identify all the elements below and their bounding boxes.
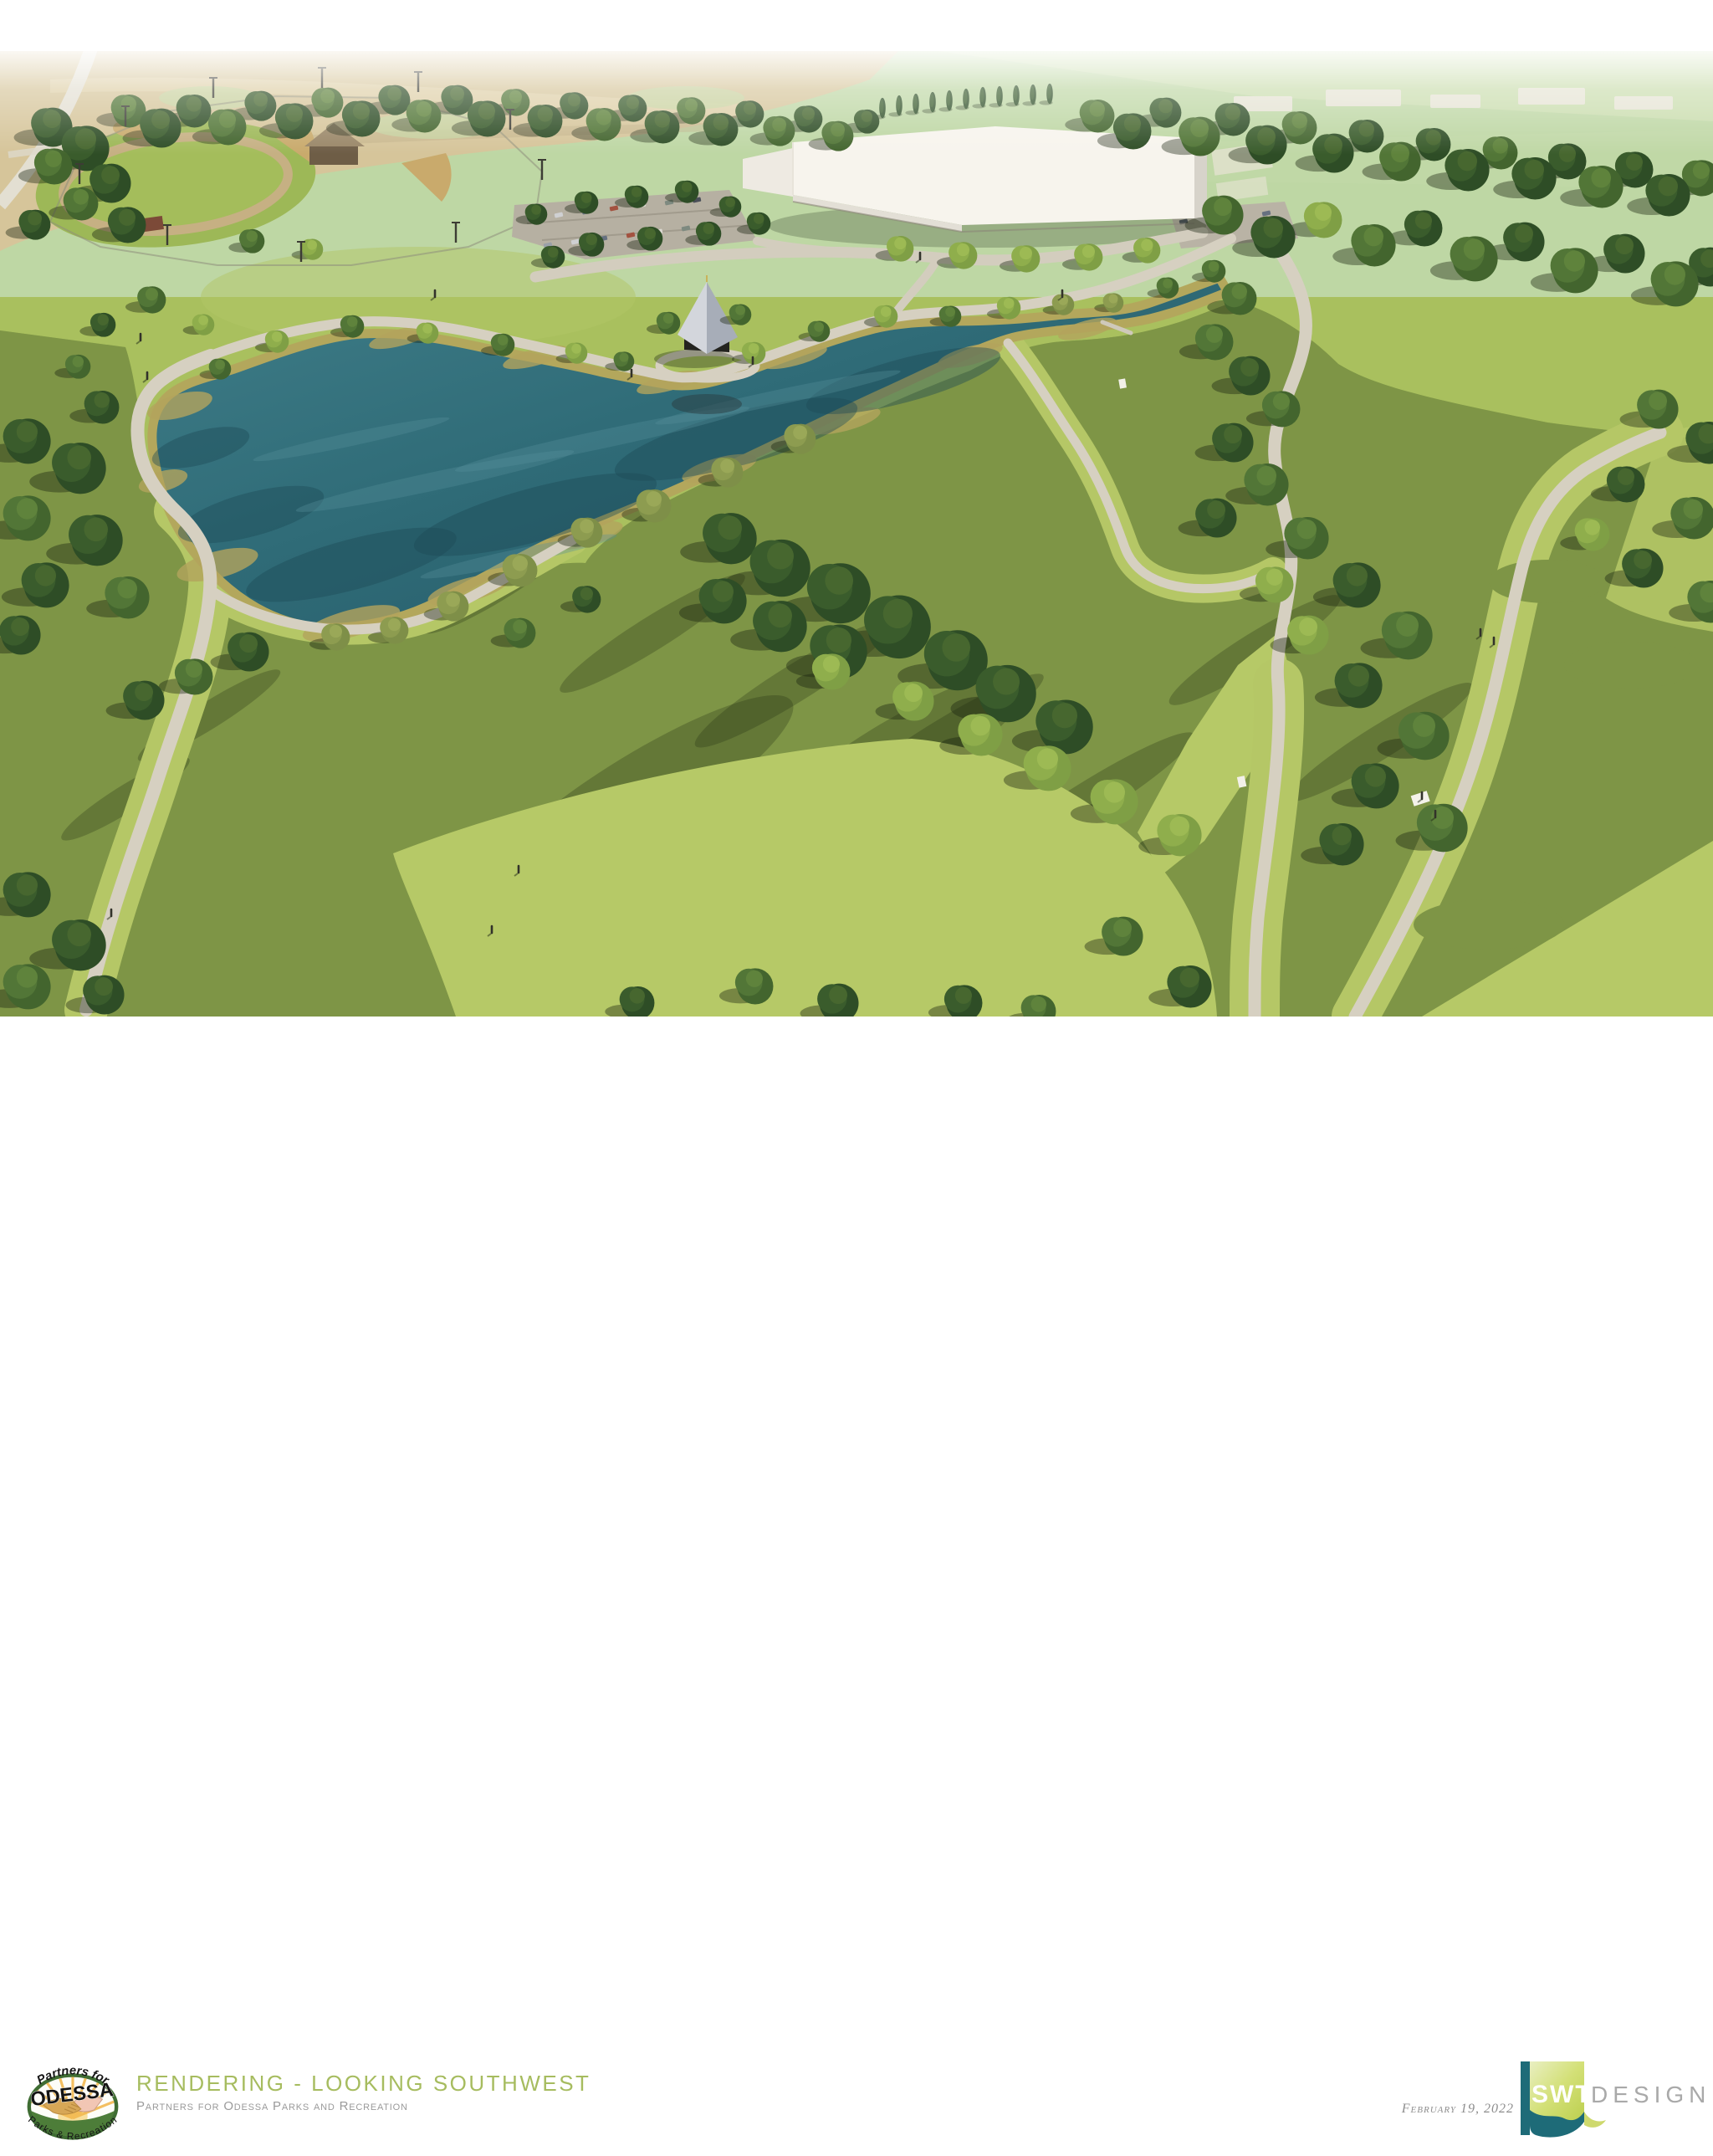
horizon-haze [0,46,1713,155]
chapel-reflection [672,394,742,414]
odessa-parks-logo: ODESSA Partners for Parks & Recreation [18,2052,125,2156]
sheet-title-block: RENDERING - LOOKING SOUTHWEST Partners f… [136,2072,591,2112]
logo-teal-bar [1521,2061,1530,2135]
firm-initials: SWT [1531,2081,1593,2108]
title-bar: ODESSA Partners for Parks & Recreation R… [0,1017,1713,1142]
swt-design-logo: SWT DESIGN [1521,2060,1709,2139]
sheet-subtitle: Partners for Odessa Parks and Recreation [136,2100,591,2112]
presentation-board: ODESSA Partners for Parks & Recreation R… [0,0,1713,1142]
sheet-title: RENDERING - LOOKING SOUTHWEST [136,2072,591,2094]
firm-wordmark: DESIGN [1591,2082,1709,2107]
park-rendering [0,46,1713,1017]
sheet-date: February 19, 2022 [1355,2102,1514,2117]
